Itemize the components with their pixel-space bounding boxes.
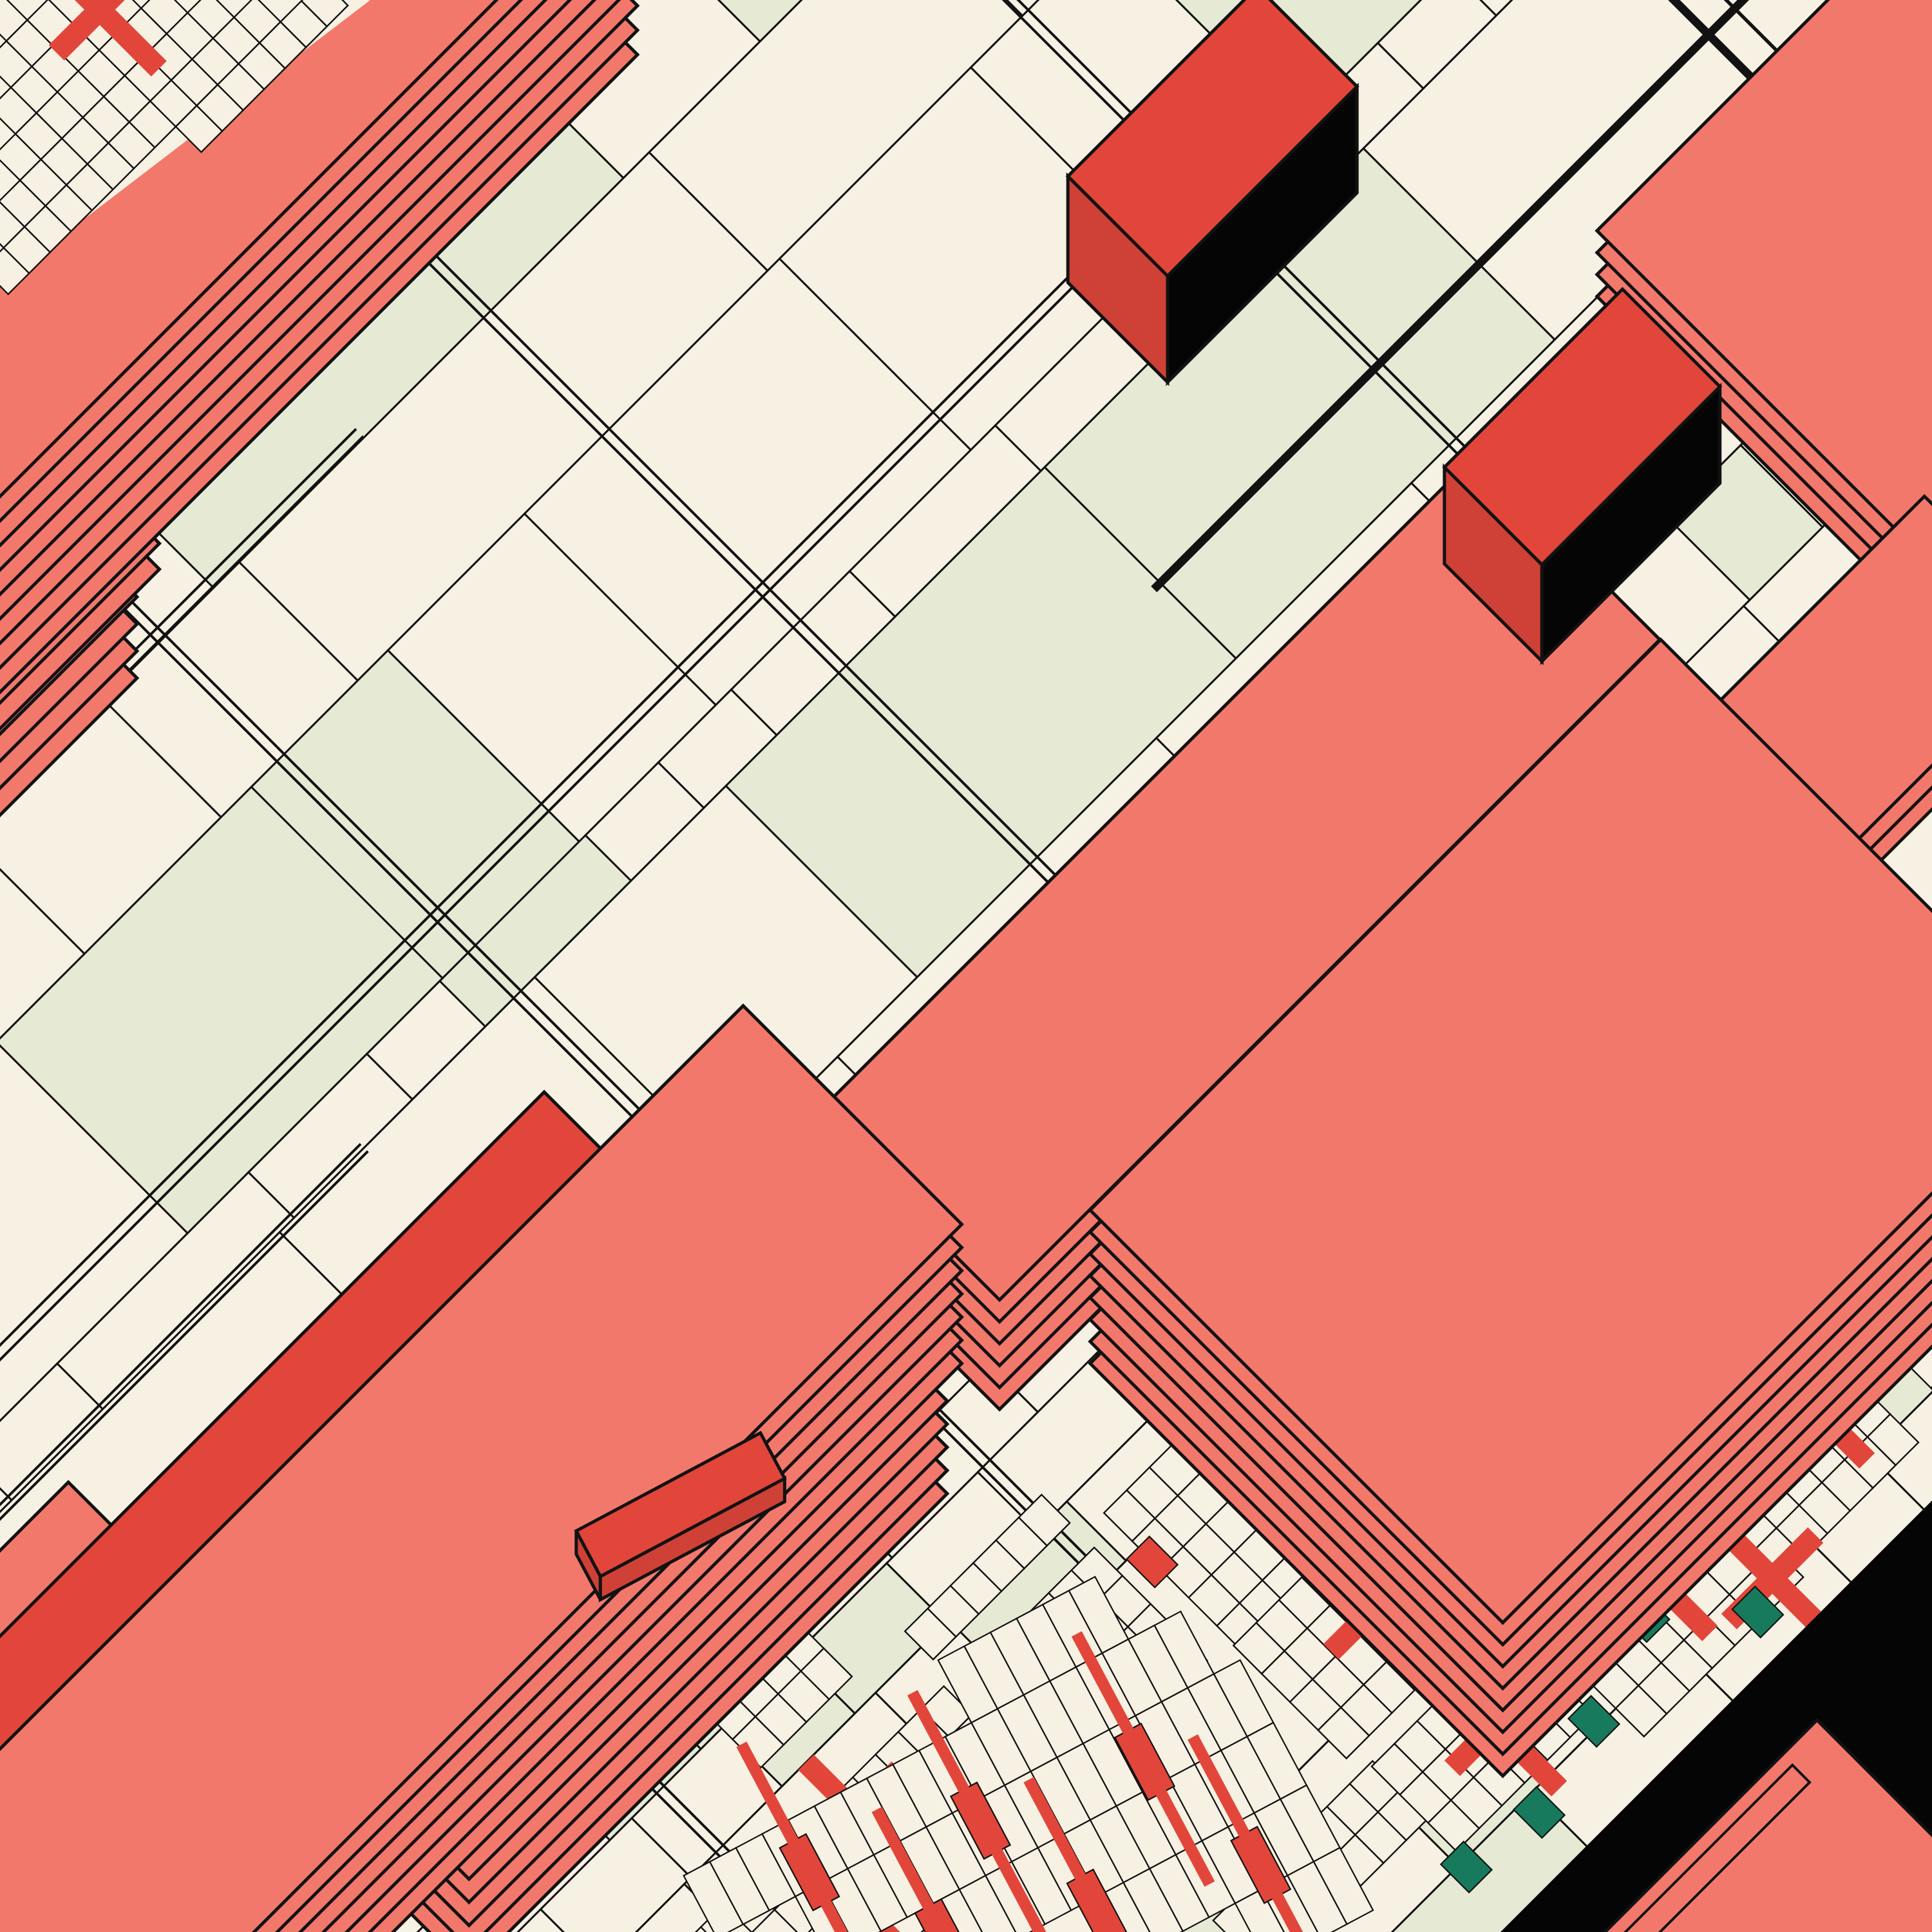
generative-artwork	[0, 0, 1932, 1932]
artwork-canvas	[0, 0, 1932, 1932]
